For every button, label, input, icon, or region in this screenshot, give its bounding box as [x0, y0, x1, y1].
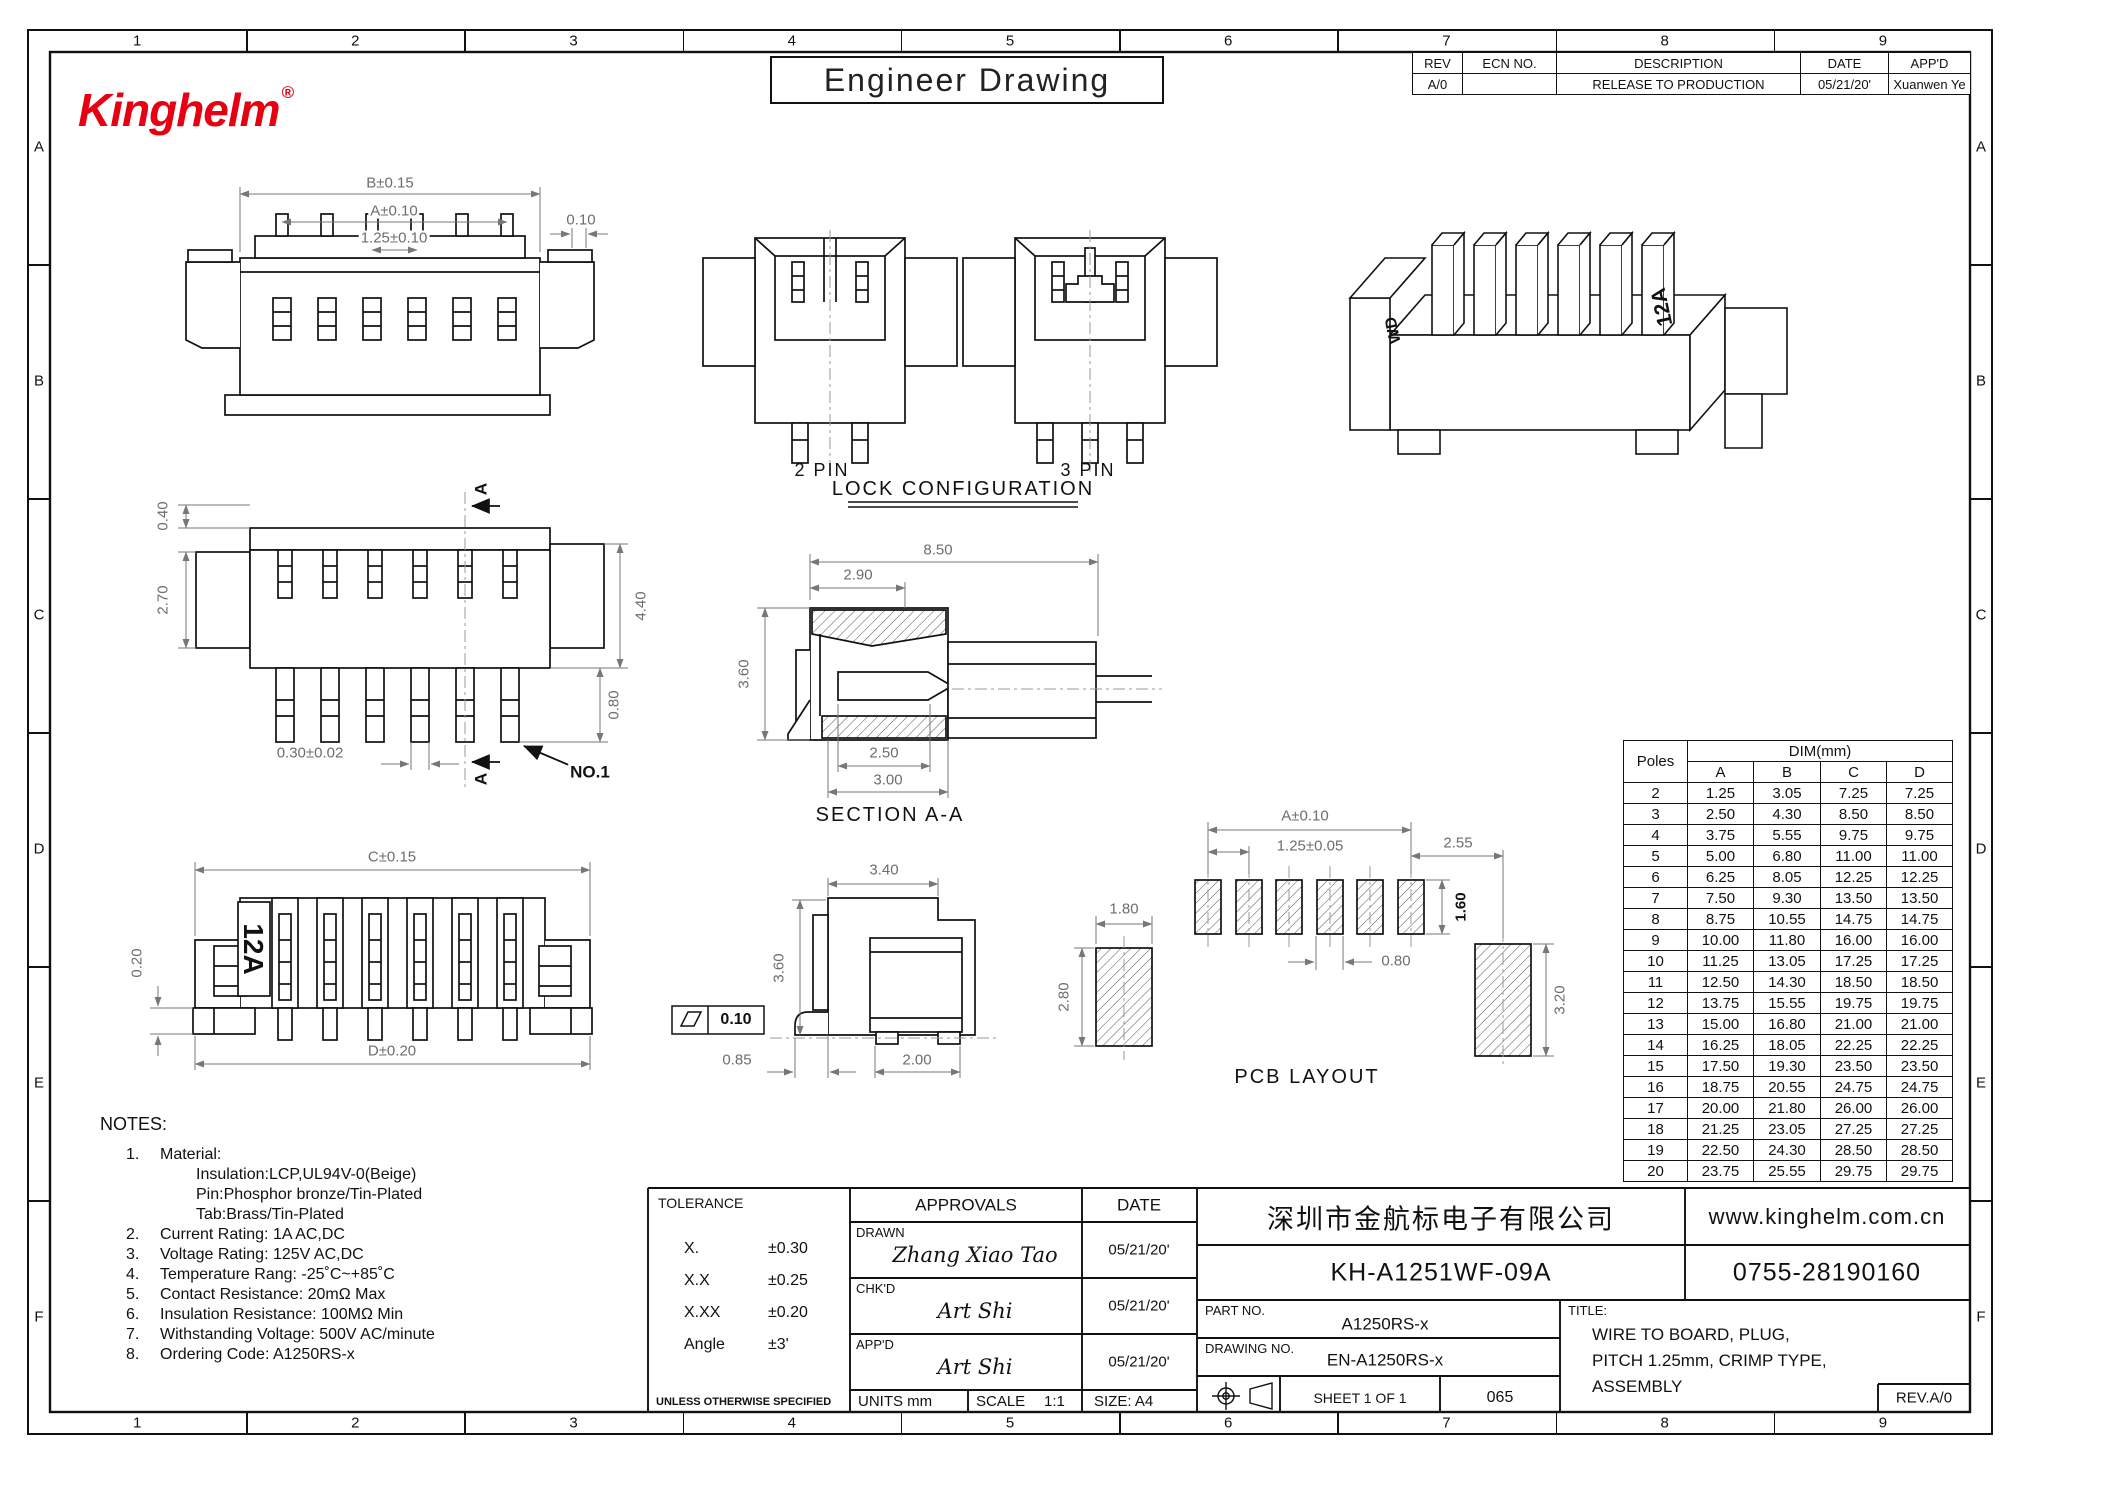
bottom-marking-12a: 12A — [239, 921, 267, 976]
zone-tick — [1337, 1412, 1339, 1434]
poles-cell: 3.75 — [1688, 825, 1754, 846]
poles-cell: 7.50 — [1688, 888, 1754, 909]
sheet-title-box: Engineer Drawing — [770, 56, 1164, 104]
pcb-layout-caption: PCB LAYOUT — [1234, 1067, 1379, 1087]
poles-row: 1720.0021.8026.0026.00 — [1624, 1098, 1953, 1119]
col-c: C — [1821, 762, 1887, 783]
poles-cell: 9.75 — [1887, 825, 1953, 846]
poles-row: 32.504.308.508.50 — [1624, 804, 1953, 825]
dim-section-outer: 3.00 — [871, 773, 904, 788]
dim-pcb-side-pad-width: 1.80 — [1107, 902, 1140, 917]
poles-cell: 12 — [1624, 993, 1688, 1014]
chkd-date: 05/21/20' — [1108, 1299, 1169, 1314]
poles-cell: 20 — [1624, 1161, 1688, 1182]
dim-bottom-c: C±0.15 — [366, 850, 418, 865]
tol-sym-0: X. — [684, 1240, 699, 1258]
poles-cell: 24.30 — [1754, 1140, 1821, 1161]
dim-pcb-side-pad-height-right: 3.20 — [1553, 983, 1568, 1016]
note-number: 1. — [100, 1145, 160, 1165]
approvals-header: APPROVALS — [915, 1197, 1017, 1214]
rev-value: A/0 — [1413, 74, 1463, 95]
zone-tick — [1970, 498, 1992, 500]
poles-cell: 21.00 — [1887, 1014, 1953, 1035]
zone-tick — [464, 30, 466, 52]
poles-cell: 16.25 — [1688, 1035, 1754, 1056]
poles-cell: 5 — [1624, 846, 1688, 867]
poles-cell: 15 — [1624, 1056, 1688, 1077]
drawn-signature: Zhang Xiao Tao — [892, 1243, 1057, 1267]
zone-tick — [1774, 30, 1776, 52]
poles-cell: 17.25 — [1887, 951, 1953, 972]
zone-tick — [1970, 732, 1992, 734]
zone-tick — [1970, 264, 1992, 266]
poles-cell: 25.55 — [1754, 1161, 1821, 1182]
poles-cell: 3.05 — [1754, 783, 1821, 804]
tol-sym-3: Angle — [684, 1336, 725, 1354]
zone-row-left: D — [34, 842, 45, 857]
zone-row-right: A — [1976, 140, 1986, 155]
poles-row: 2023.7525.5529.7529.75 — [1624, 1161, 1953, 1182]
appd-date: 05/21/20' — [1108, 1355, 1169, 1370]
poles-row: 1517.5019.3023.5023.50 — [1624, 1056, 1953, 1077]
dim-pcb-side-pad-height-left: 2.80 — [1057, 980, 1072, 1013]
poles-cell: 21.80 — [1754, 1098, 1821, 1119]
poles-cell: 18.05 — [1754, 1035, 1821, 1056]
appd-value: Xuanwen Ye — [1889, 74, 1971, 95]
tol-sym-2: X.XX — [684, 1304, 720, 1322]
sheet-code: 065 — [1487, 1390, 1514, 1406]
note-text: Temperature Rang: -25˚C~+85˚C — [160, 1266, 395, 1283]
poles-cell: 3 — [1624, 804, 1688, 825]
zone-tick — [1970, 966, 1992, 968]
dim-pcb-end: 2.55 — [1441, 836, 1474, 851]
title-label: TITLE: — [1568, 1304, 1607, 1317]
poles-cell: 10.00 — [1688, 930, 1754, 951]
poles-cell: 11.00 — [1821, 846, 1887, 867]
revision-row: A/0 RELEASE TO PRODUCTION 05/21/20' Xuan… — [1413, 74, 1971, 95]
dim-section-height: 3.60 — [737, 657, 752, 690]
note-item: 3.Voltage Rating: 125V AC,DC — [100, 1245, 530, 1265]
poles-cell: 6.80 — [1754, 846, 1821, 867]
poles-cell: 12.50 — [1688, 972, 1754, 993]
poles-cell: 29.75 — [1821, 1161, 1887, 1182]
zone-row-left: F — [34, 1310, 43, 1325]
poles-cell: 2 — [1624, 783, 1688, 804]
zone-tick — [464, 1412, 466, 1434]
poles-cell: 4 — [1624, 825, 1688, 846]
description-header: DESCRIPTION — [1557, 53, 1801, 74]
note-item: 6.Insulation Resistance: 100MΩ Min — [100, 1305, 530, 1325]
note-number: 3. — [100, 1245, 160, 1265]
zone-column-bottom: 1 — [133, 1416, 141, 1431]
poles-dim-table: Poles DIM(mm) A B C D 21.253.057.257.253… — [1623, 740, 1953, 1182]
note-number: 8. — [100, 1345, 160, 1365]
flatness-value: 0.10 — [718, 1012, 753, 1028]
poles-header: Poles — [1624, 741, 1688, 783]
zone-column-bottom: 2 — [351, 1416, 359, 1431]
size-label: SIZE: A4 — [1094, 1394, 1153, 1409]
poles-cell: 24.75 — [1821, 1077, 1887, 1098]
zone-tick — [1119, 30, 1121, 52]
dim-section-inner: 2.50 — [867, 746, 900, 761]
sheet-label: SHEET 1 OF 1 — [1313, 1391, 1406, 1405]
note-text: Current Rating: 1A AC,DC — [160, 1226, 345, 1243]
col-a: A — [1688, 762, 1754, 783]
dim-section-total: 8.50 — [921, 543, 954, 558]
poles-cell: 27.25 — [1887, 1119, 1953, 1140]
poles-cell: 10.55 — [1754, 909, 1821, 930]
poles-cell: 27.25 — [1821, 1119, 1887, 1140]
zone-column-top: 5 — [1006, 34, 1014, 49]
zone-column-bottom: 5 — [1006, 1416, 1014, 1431]
poles-cell: 19.75 — [1821, 993, 1887, 1014]
poles-cell: 23.50 — [1887, 1056, 1953, 1077]
tol-val-2: ±0.20 — [768, 1304, 808, 1322]
note-number: 7. — [100, 1325, 160, 1345]
zone-tick — [1119, 1412, 1121, 1434]
poles-cell: 28.50 — [1887, 1140, 1953, 1161]
poles-cell: 15.00 — [1688, 1014, 1754, 1035]
revision-header-row: REV ECN NO. DESCRIPTION DATE APP'D — [1413, 53, 1971, 74]
poles-cell: 11.80 — [1754, 930, 1821, 951]
zone-row-left: C — [34, 608, 45, 623]
drawing-sheet: Kinghelm® Engineer Drawing REV ECN NO. D… — [0, 0, 2105, 1487]
zone-column-bottom: 6 — [1224, 1416, 1232, 1431]
scale-label: SCALE — [976, 1394, 1025, 1409]
poles-cell: 22.25 — [1821, 1035, 1887, 1056]
poles-cell: 23.75 — [1688, 1161, 1754, 1182]
note-item: 5.Contact Resistance: 20mΩ Max — [100, 1285, 530, 1305]
zone-tick — [901, 1412, 903, 1434]
poles-cell: 14 — [1624, 1035, 1688, 1056]
poles-row: 1618.7520.5524.7524.75 — [1624, 1077, 1953, 1098]
dim-pcb-pad-width: 0.80 — [1379, 954, 1412, 969]
poles-cell: 13.05 — [1754, 951, 1821, 972]
poles-cell: 5.00 — [1688, 846, 1754, 867]
poles-cell: 16 — [1624, 1077, 1688, 1098]
poles-cell: 18.75 — [1688, 1077, 1754, 1098]
sheet-title: Engineer Drawing — [824, 62, 1110, 99]
section-caption: SECTION A-A — [816, 805, 965, 825]
poles-cell: 14.75 — [1887, 909, 1953, 930]
col-b: B — [1754, 762, 1821, 783]
zone-tick — [28, 966, 50, 968]
date-value: 05/21/20' — [1801, 74, 1889, 95]
zone-tick — [1556, 30, 1558, 52]
poles-row: 910.0011.8016.0016.00 — [1624, 930, 1953, 951]
dim-side-top: 0.40 — [156, 499, 171, 532]
poles-cell: 8.50 — [1887, 804, 1953, 825]
dim-section-front: 2.90 — [841, 568, 874, 583]
website: www.kinghelm.com.cn — [1709, 1204, 1946, 1230]
poles-row: 1112.5014.3018.5018.50 — [1624, 972, 1953, 993]
poles-cell: 11 — [1624, 972, 1688, 993]
poles-row: 1315.0016.8021.0021.00 — [1624, 1014, 1953, 1035]
note-subitem: Insulation:LCP,UL94V-0(Beige) — [100, 1165, 530, 1185]
dim-front-a: A±0.10 — [368, 204, 419, 219]
poles-cell: 19.30 — [1754, 1056, 1821, 1077]
dim-front-tab: 0.10 — [564, 213, 597, 228]
lock-configuration-caption: LOCK CONFIGURATION — [832, 479, 1094, 499]
note-number: 6. — [100, 1305, 160, 1325]
label-2pin: 2 PIN — [794, 461, 849, 479]
poles-row: 1922.5024.3028.5028.50 — [1624, 1140, 1953, 1161]
poles-cell: 8.75 — [1688, 909, 1754, 930]
pin1-label: NO.1 — [568, 764, 612, 781]
poles-cell: 20.00 — [1688, 1098, 1754, 1119]
dim-side-pin-length: 0.80 — [607, 688, 622, 721]
notes-list: 1.Material:Insulation:LCP,UL94V-0(Beige)… — [100, 1145, 530, 1365]
zone-column-top: 3 — [569, 34, 577, 49]
note-text: Ordering Code: A1250RS-x — [160, 1346, 355, 1363]
date-header: DATE — [1801, 53, 1889, 74]
model-number: KH-A1251WF-09A — [1330, 1259, 1551, 1288]
note-text: Withstanding Voltage: 500V AC/minute — [160, 1326, 435, 1343]
tol-val-1: ±0.25 — [768, 1272, 808, 1290]
note-number: 4. — [100, 1265, 160, 1285]
poles-cell: 4.30 — [1754, 804, 1821, 825]
poles-cell: 7 — [1624, 888, 1688, 909]
zone-tick — [28, 264, 50, 266]
zone-row-right: F — [1976, 1310, 1985, 1325]
tol-val-0: ±0.30 — [768, 1240, 808, 1258]
tol-sym-1: X.X — [684, 1272, 710, 1290]
zone-column-top: 7 — [1442, 34, 1450, 49]
zone-row-right: D — [1976, 842, 1987, 857]
poles-cell: 18.50 — [1821, 972, 1887, 993]
poles-cell: 13.75 — [1688, 993, 1754, 1014]
rev-box: REV.A/0 — [1896, 1391, 1952, 1406]
poles-cell: 12.25 — [1887, 867, 1953, 888]
zone-column-bottom: 3 — [569, 1416, 577, 1431]
title-line-1: WIRE TO BOARD, PLUG, — [1592, 1326, 1790, 1343]
zone-column-bottom: 8 — [1660, 1416, 1668, 1431]
ecn-header: ECN NO. — [1463, 53, 1557, 74]
zone-tick — [28, 498, 50, 500]
poles-cell: 10 — [1624, 951, 1688, 972]
zone-tick — [1556, 1412, 1558, 1434]
poles-cell: 8.50 — [1821, 804, 1887, 825]
company-name: 深圳市金航标电子有限公司 — [1267, 1198, 1615, 1237]
poles-cell: 28.50 — [1821, 1140, 1887, 1161]
poles-cell: 15.55 — [1754, 993, 1821, 1014]
notes-title: NOTES: — [100, 1114, 530, 1135]
poles-cell: 17 — [1624, 1098, 1688, 1119]
note-subitem: Tab:Brass/Tin-Plated — [100, 1205, 530, 1225]
part-no: A1250RS-x — [1342, 1316, 1429, 1333]
poles-cell: 17.25 — [1821, 951, 1887, 972]
zone-column-top: 1 — [133, 34, 141, 49]
revision-table: REV ECN NO. DESCRIPTION DATE APP'D A/0 R… — [1412, 52, 1971, 95]
zone-tick — [901, 30, 903, 52]
poles-row: 55.006.8011.0011.00 — [1624, 846, 1953, 867]
dim-side2-width: 3.40 — [867, 863, 900, 878]
poles-cell: 18.50 — [1887, 972, 1953, 993]
zone-tick — [1774, 1412, 1776, 1434]
zone-tick — [1337, 30, 1339, 52]
dim-side-left: 2.70 — [156, 583, 171, 616]
poles-cell: 13.50 — [1821, 888, 1887, 909]
poles-cell: 20.55 — [1754, 1077, 1821, 1098]
poles-row: 77.509.3013.5013.50 — [1624, 888, 1953, 909]
appd-header: APP'D — [1889, 53, 1971, 74]
note-item: 8.Ordering Code: A1250RS-x — [100, 1345, 530, 1365]
poles-cell: 7.25 — [1887, 783, 1953, 804]
poles-cell: 11.00 — [1887, 846, 1953, 867]
poles-cell: 9.30 — [1754, 888, 1821, 909]
kinghelm-logo: Kinghelm® — [78, 84, 293, 133]
zone-column-bottom: 7 — [1442, 1416, 1450, 1431]
poles-cell: 14.75 — [1821, 909, 1887, 930]
poles-cell: 8.05 — [1754, 867, 1821, 888]
zone-column-bottom: 9 — [1879, 1416, 1887, 1431]
poles-cell: 19 — [1624, 1140, 1688, 1161]
zone-row-right: E — [1976, 1076, 1986, 1091]
poles-cell: 5.55 — [1754, 825, 1821, 846]
logo-text: Kinghelm — [78, 84, 280, 136]
title-line-2: PITCH 1.25mm, CRIMP TYPE, — [1592, 1352, 1827, 1369]
note-subitem: Pin:Phosphor bronze/Tin-Plated — [100, 1185, 530, 1205]
poles-cell: 2.50 — [1688, 804, 1754, 825]
poles-row: 43.755.559.759.75 — [1624, 825, 1953, 846]
zone-tick — [28, 732, 50, 734]
zone-tick — [683, 1412, 685, 1434]
poles-cell: 19.75 — [1887, 993, 1953, 1014]
ecn-value — [1463, 74, 1557, 95]
date-col-header: DATE — [1117, 1197, 1161, 1214]
poles-cell: 22.50 — [1688, 1140, 1754, 1161]
note-item: 2.Current Rating: 1A AC,DC — [100, 1225, 530, 1245]
dim-side2-pad: 2.00 — [900, 1053, 933, 1068]
section-letter-bottom: A — [473, 771, 490, 787]
poles-row: 1213.7515.5519.7519.75 — [1624, 993, 1953, 1014]
zone-column-top: 4 — [788, 34, 796, 49]
note-number: 2. — [100, 1225, 160, 1245]
chkd-label: CHK'D — [856, 1282, 895, 1295]
registered-mark: ® — [282, 83, 294, 102]
zone-row-left: B — [34, 374, 44, 389]
note-text: Contact Resistance: 20mΩ Max — [160, 1286, 385, 1303]
note-item: 1.Material: — [100, 1145, 530, 1165]
poles-cell: 16.00 — [1821, 930, 1887, 951]
label-3pin: 3 PIN — [1060, 461, 1115, 479]
poles-cell: 16.80 — [1754, 1014, 1821, 1035]
section-letter-top: A — [473, 481, 490, 497]
poles-cell: 6.25 — [1688, 867, 1754, 888]
zone-column-top: 8 — [1660, 34, 1668, 49]
poles-cell: 21.00 — [1821, 1014, 1887, 1035]
dim-bottom-standoff: 0.20 — [130, 946, 145, 979]
zone-row-right: B — [1976, 374, 1986, 389]
part-no-label: PART NO. — [1205, 1304, 1265, 1317]
dim-front-pitch: 1.25±0.10 — [359, 231, 430, 246]
poles-row: 1416.2518.0522.2522.25 — [1624, 1035, 1953, 1056]
dim-side2-foot: 0.85 — [720, 1053, 753, 1068]
poles-row: 1011.2513.0517.2517.25 — [1624, 951, 1953, 972]
zone-column-bottom: 4 — [788, 1416, 796, 1431]
poles-row: 1821.2523.0527.2527.25 — [1624, 1119, 1953, 1140]
poles-cell: 7.25 — [1821, 783, 1887, 804]
tolerance-title: TOLERANCE — [658, 1196, 743, 1210]
poles-cell: 8 — [1624, 909, 1688, 930]
dim-bottom-d: D±0.20 — [366, 1044, 418, 1059]
chkd-signature: Art Shi — [938, 1299, 1013, 1323]
note-text: Voltage Rating: 125V AC,DC — [160, 1246, 364, 1263]
poles-row: 66.258.0512.2512.25 — [1624, 867, 1953, 888]
note-number: 5. — [100, 1285, 160, 1305]
note-item: 7.Withstanding Voltage: 500V AC/minute — [100, 1325, 530, 1345]
poles-cell: 21.25 — [1688, 1119, 1754, 1140]
description-value: RELEASE TO PRODUCTION — [1557, 74, 1801, 95]
poles-cell: 24.75 — [1887, 1077, 1953, 1098]
tol-val-3: ±3' — [768, 1336, 789, 1354]
appd-signature: Art Shi — [938, 1355, 1013, 1379]
dim-side-pin-width: 0.30±0.02 — [275, 746, 346, 761]
notes-section: NOTES: 1.Material:Insulation:LCP,UL94V-0… — [100, 1114, 530, 1365]
note-text: Material: — [160, 1146, 221, 1163]
zone-tick — [28, 1200, 50, 1202]
drawing-no-label: DRAWING NO. — [1205, 1342, 1294, 1355]
zone-row-right: C — [1976, 608, 1987, 623]
poles-cell: 29.75 — [1887, 1161, 1953, 1182]
zone-column-top: 6 — [1224, 34, 1232, 49]
zone-column-top: 9 — [1879, 34, 1887, 49]
drawn-label: DRAWN — [856, 1226, 905, 1239]
zone-column-top: 2 — [351, 34, 359, 49]
dim-pcb-pad-height: 1.60 — [1454, 890, 1469, 923]
zone-tick — [1970, 1200, 1992, 1202]
col-d: D — [1887, 762, 1953, 783]
dim-pcb-a: A±0.10 — [1279, 809, 1330, 824]
poles-cell: 12.25 — [1821, 867, 1887, 888]
phone-number: 0755-28190160 — [1733, 1259, 1921, 1288]
zone-row-left: A — [34, 140, 44, 155]
zone-tick — [246, 30, 248, 52]
poles-cell: 9.75 — [1821, 825, 1887, 846]
poles-row: 88.7510.5514.7514.75 — [1624, 909, 1953, 930]
drawn-date: 05/21/20' — [1108, 1243, 1169, 1258]
poles-cell: 13.50 — [1887, 888, 1953, 909]
poles-cell: 23.05 — [1754, 1119, 1821, 1140]
zone-tick — [683, 30, 685, 52]
appd-label: APP'D — [856, 1338, 894, 1351]
poles-cell: 9 — [1624, 930, 1688, 951]
scale-value: 1:1 — [1044, 1394, 1065, 1409]
poles-cell: 26.00 — [1887, 1098, 1953, 1119]
dim-front-b: B±0.15 — [364, 176, 415, 191]
note-item: 4.Temperature Rang: -25˚C~+85˚C — [100, 1265, 530, 1285]
poles-cell: 14.30 — [1754, 972, 1821, 993]
rev-header: REV — [1413, 53, 1463, 74]
poles-cell: 17.50 — [1688, 1056, 1754, 1077]
tolerance-note: UNLESS OTHERWISE SPECIFIED — [656, 1396, 831, 1408]
poles-cell: 22.25 — [1887, 1035, 1953, 1056]
poles-cell: 11.25 — [1688, 951, 1754, 972]
dim-side-right: 4.40 — [634, 589, 649, 622]
dim-pcb-pitch: 1.25±0.05 — [1275, 839, 1346, 854]
poles-row: 21.253.057.257.25 — [1624, 783, 1953, 804]
zone-row-left: E — [34, 1076, 44, 1091]
poles-cell: 13 — [1624, 1014, 1688, 1035]
drawing-no: EN-A1250RS-x — [1327, 1352, 1443, 1369]
poles-cell: 18 — [1624, 1119, 1688, 1140]
zone-tick — [246, 1412, 248, 1434]
poles-cell: 6 — [1624, 867, 1688, 888]
poles-cell: 16.00 — [1887, 930, 1953, 951]
dim-mm-header: DIM(mm) — [1688, 741, 1953, 762]
poles-cell: 23.50 — [1821, 1056, 1887, 1077]
poles-cell: 1.25 — [1688, 783, 1754, 804]
